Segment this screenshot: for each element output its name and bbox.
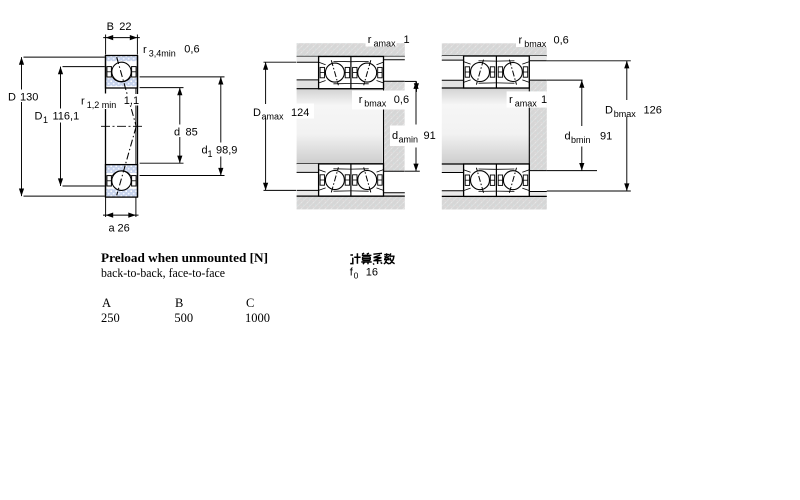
svg-text:1: 1: [541, 94, 547, 106]
svg-text:r: r: [81, 96, 85, 108]
svg-text:d: d: [174, 127, 180, 139]
svg-text:130: 130: [20, 92, 38, 104]
svg-text:Preload when unmounted [N]: Preload when unmounted [N]: [101, 250, 268, 265]
svg-text:a: a: [109, 223, 116, 235]
svg-text:back-to-back, face-to-face: back-to-back, face-to-face: [101, 265, 225, 280]
svg-text:98,9: 98,9: [216, 145, 237, 157]
svg-text:amin: amin: [399, 135, 419, 145]
svg-text:bmax: bmax: [364, 99, 387, 109]
svg-text:D: D: [253, 107, 261, 119]
svg-text:D: D: [8, 92, 16, 104]
svg-text:1: 1: [208, 149, 213, 159]
svg-text:16: 16: [366, 267, 378, 279]
svg-text:3,4min: 3,4min: [149, 49, 176, 59]
svg-text:bmin: bmin: [571, 135, 591, 145]
svg-text:bmax: bmax: [614, 109, 637, 119]
svg-text:250: 250: [101, 311, 120, 325]
svg-text:0,6: 0,6: [394, 94, 409, 106]
svg-text:26: 26: [118, 223, 130, 235]
svg-text:85: 85: [186, 127, 198, 139]
svg-text:r: r: [143, 44, 147, 56]
svg-text:amax: amax: [374, 39, 397, 49]
svg-text:1,2 min: 1,2 min: [87, 100, 117, 110]
svg-text:r: r: [368, 34, 372, 46]
svg-text:1,1: 1,1: [124, 95, 139, 107]
svg-text:116,1: 116,1: [53, 111, 80, 123]
svg-text:amax: amax: [262, 112, 285, 122]
svg-text:0,6: 0,6: [184, 44, 199, 56]
svg-text:91: 91: [600, 131, 612, 143]
svg-text:1000: 1000: [245, 311, 270, 325]
svg-text:r: r: [509, 94, 513, 106]
svg-text:r: r: [359, 94, 363, 106]
svg-text:22: 22: [119, 21, 131, 33]
svg-text:B: B: [107, 21, 114, 33]
svg-text:bmax: bmax: [524, 39, 547, 49]
svg-text:D: D: [605, 105, 613, 117]
svg-text:B: B: [175, 296, 183, 310]
svg-text:amax: amax: [515, 98, 538, 108]
svg-text:r: r: [519, 35, 523, 47]
svg-text:d: d: [392, 130, 398, 142]
svg-text:124: 124: [291, 107, 309, 119]
svg-text:1: 1: [43, 115, 48, 125]
svg-text:1: 1: [404, 34, 410, 46]
svg-text:d: d: [565, 131, 571, 143]
svg-text:A: A: [102, 296, 111, 310]
svg-text:91: 91: [424, 130, 436, 142]
svg-text:C: C: [246, 296, 254, 310]
svg-text:0,6: 0,6: [554, 35, 569, 47]
svg-text:500: 500: [174, 311, 193, 325]
svg-text:126: 126: [644, 105, 662, 117]
svg-text:D: D: [35, 111, 43, 123]
svg-text:0: 0: [354, 271, 359, 281]
